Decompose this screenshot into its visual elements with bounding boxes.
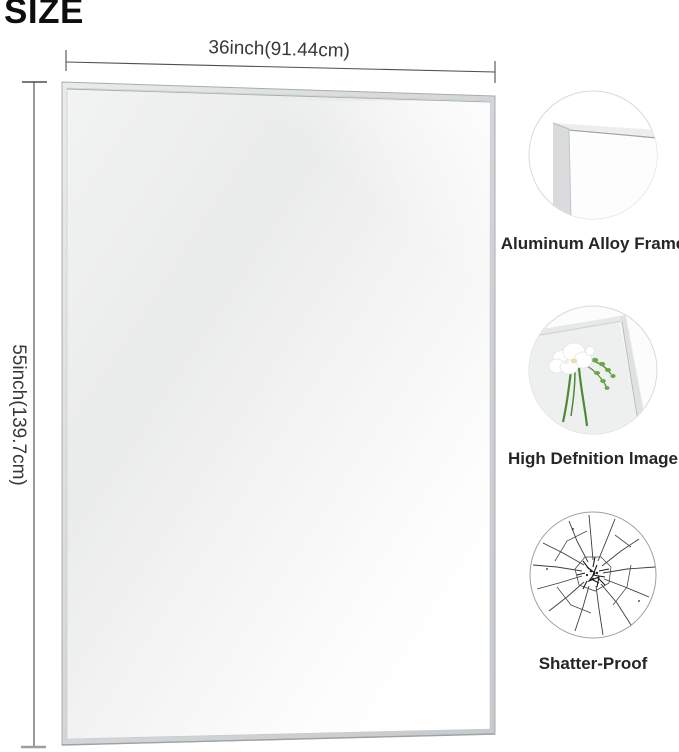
feature-label: Aluminum Alloy Frame <box>501 234 679 254</box>
feature-shatter-proof: Shatter-Proof <box>505 509 679 674</box>
width-dimension-line <box>66 62 495 72</box>
height-dimension-label: 55inch(139.7cm) <box>8 344 29 486</box>
feature-high-definition: High Defnition lmage <box>505 304 679 469</box>
flower-center <box>571 359 577 364</box>
product-size-infographic: SIZE <box>0 0 679 752</box>
frame-corner-icon <box>527 89 659 221</box>
flower-reflection-icon <box>527 304 659 436</box>
shattered-glass-icon <box>527 509 659 641</box>
mirror-illustration <box>62 82 495 745</box>
width-dimension-label: 36inch(91.44cm) <box>208 37 350 62</box>
feature-aluminum-frame: Aluminum Alloy Frame <box>505 89 679 254</box>
feature-label: High Defnition lmage <box>508 449 678 469</box>
feature-label: Shatter-Proof <box>539 654 648 674</box>
